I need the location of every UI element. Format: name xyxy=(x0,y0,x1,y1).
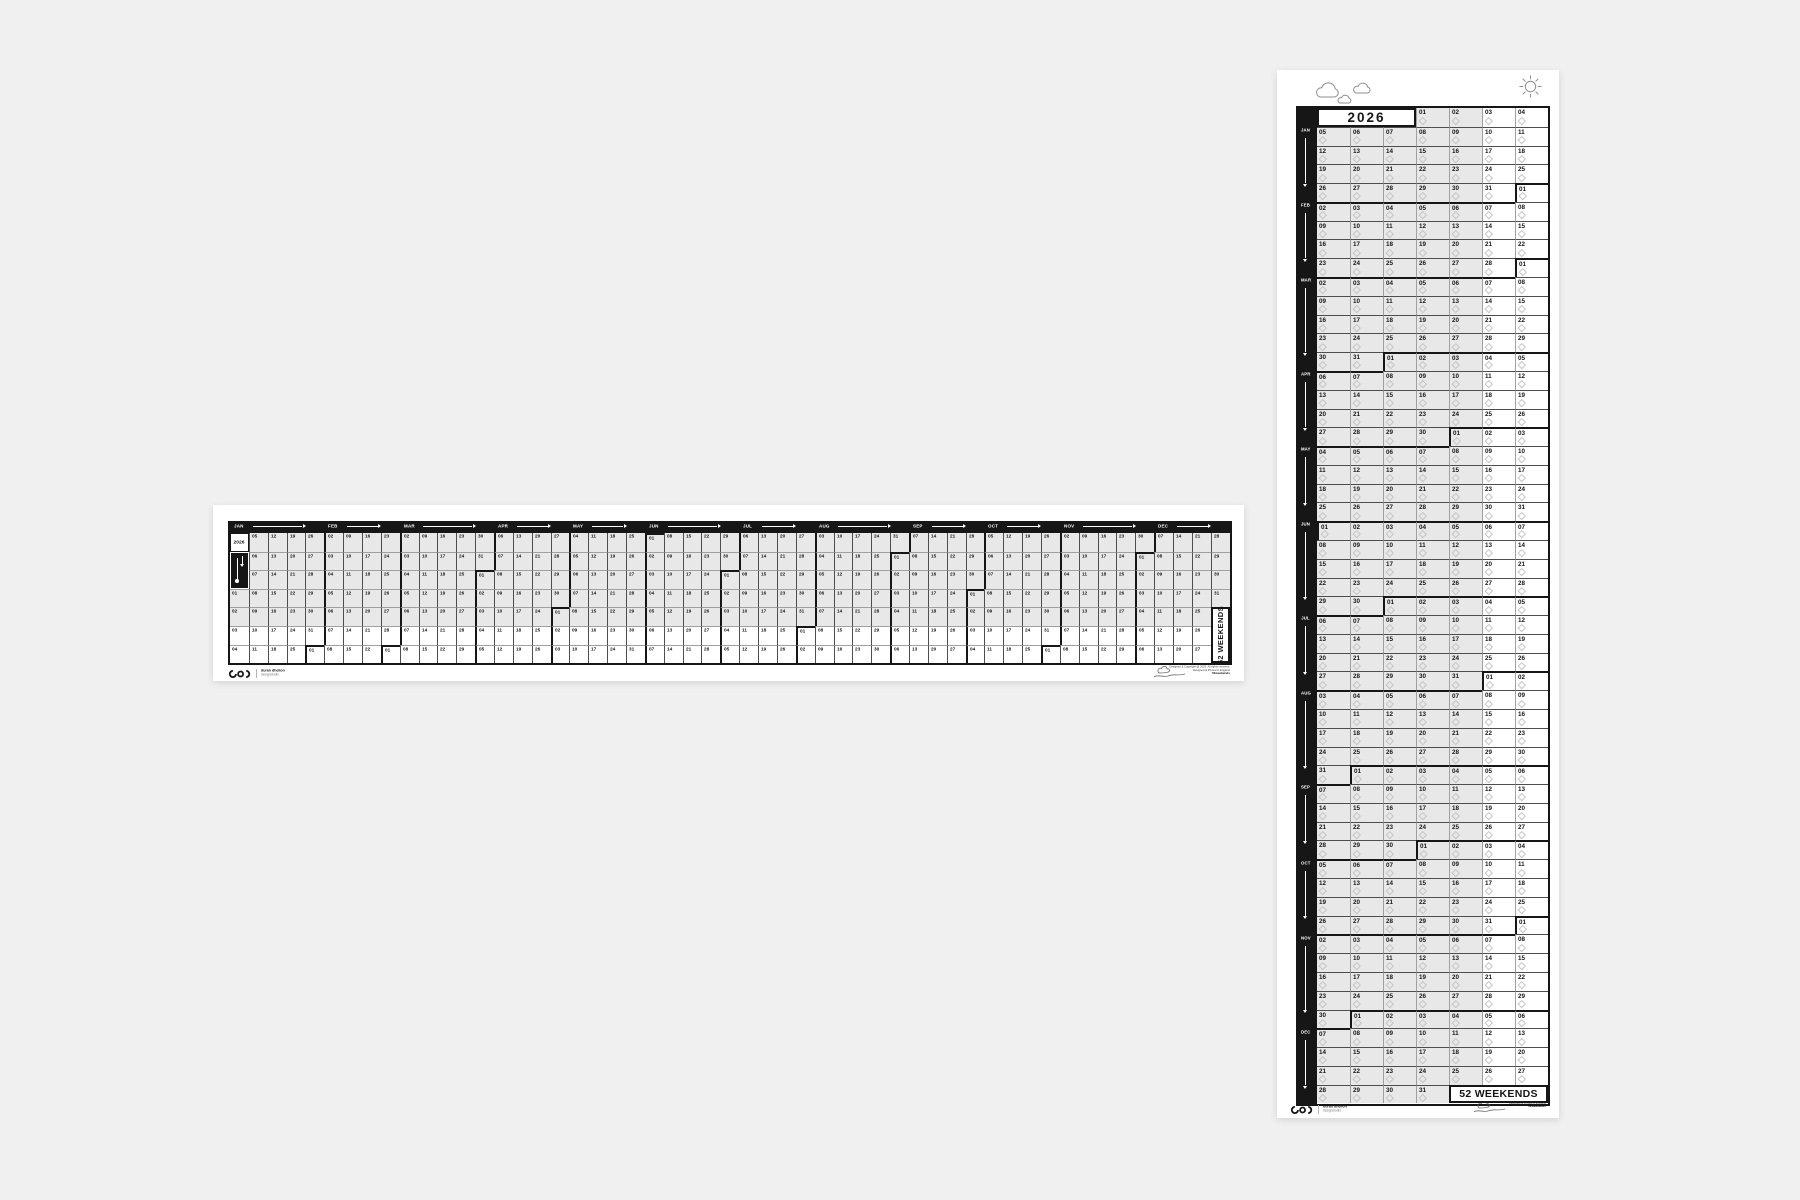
day-cell: 28 xyxy=(966,533,985,552)
date-number: 03 xyxy=(232,628,237,633)
month-label: NOV xyxy=(1301,936,1310,940)
day-cell: 03 xyxy=(1449,596,1482,615)
diamond-icon xyxy=(1485,568,1493,576)
date-number: 22 xyxy=(1419,899,1426,905)
date-number: 04 xyxy=(1353,693,1360,699)
date-number: 14 xyxy=(1485,298,1492,304)
diamond-icon xyxy=(1386,718,1394,726)
date-number: 16 xyxy=(1518,711,1525,717)
brand-logo-icon xyxy=(1290,1105,1316,1115)
date-number: 07 xyxy=(988,572,993,577)
day-cell: 22 xyxy=(1383,653,1416,672)
date-number: 14 xyxy=(1319,1049,1326,1055)
diamond-icon xyxy=(1321,530,1329,538)
date-number: 05 xyxy=(649,609,654,614)
day-cell: 03 xyxy=(1060,552,1079,571)
day-cell: 17 xyxy=(1003,626,1022,645)
date-number: 30 xyxy=(1386,1087,1393,1093)
date-number: 19 xyxy=(1319,166,1326,172)
diamond-icon xyxy=(1419,549,1427,557)
diamond-icon xyxy=(1485,718,1493,726)
day-cell: 16 xyxy=(513,589,532,608)
day-cell: 08 xyxy=(494,570,513,589)
diamond-icon xyxy=(1386,1019,1394,1027)
date-number: 29 xyxy=(1319,598,1326,604)
date-number: 18 xyxy=(1518,148,1525,154)
date-number: 13 xyxy=(271,554,276,559)
diamond-icon xyxy=(1386,399,1394,407)
date-number: 05 xyxy=(573,554,578,559)
date-number: 18 xyxy=(440,572,445,577)
day-cell: 24 xyxy=(1416,822,1449,841)
date-number: 27 xyxy=(1353,185,1360,191)
date-number: 21 xyxy=(1101,628,1106,633)
day-cell: 23 xyxy=(777,589,796,608)
month-label: AUG xyxy=(1301,691,1310,695)
day-cell: 03 xyxy=(966,626,985,645)
day-cell: 27 xyxy=(1449,333,1482,352)
date-number: 22 xyxy=(535,572,540,577)
diamond-icon xyxy=(1353,455,1361,463)
date-number: 25 xyxy=(874,554,879,559)
date-number: 27 xyxy=(1195,647,1200,652)
tagline-box: 52 WEEKENDS xyxy=(1211,607,1230,663)
diamond-icon xyxy=(1353,906,1361,914)
diamond-icon xyxy=(1353,211,1361,219)
day-cell: 22 xyxy=(362,645,381,664)
day-cell: 15 xyxy=(1482,709,1515,728)
day-cell: 08 xyxy=(1383,615,1416,634)
day-cell: 10 xyxy=(1383,540,1416,559)
day-cell: 04 xyxy=(324,570,343,589)
diamond-icon xyxy=(1518,699,1526,707)
day-cell: 27 xyxy=(626,570,645,589)
date-number: 24 xyxy=(1386,580,1393,586)
day-cell: 08 xyxy=(1449,446,1482,465)
day-cell: 07 xyxy=(494,552,513,571)
day-cell: 18 xyxy=(1350,728,1383,747)
day-cell: 13 xyxy=(1449,296,1482,315)
date-number: 08 xyxy=(572,609,577,614)
date-number: 28 xyxy=(1119,628,1124,633)
diamond-icon xyxy=(1485,1056,1493,1064)
day-cell: 01 xyxy=(1317,521,1350,540)
right-arrow-icon xyxy=(668,526,717,527)
diamond-icon xyxy=(1319,906,1327,914)
date-number: 03 xyxy=(894,591,899,596)
date-number: 15 xyxy=(591,609,596,614)
day-cell: 06 xyxy=(1317,615,1350,634)
day-cell: 12 xyxy=(1449,540,1482,559)
day-cell: 09 xyxy=(1383,784,1416,803)
day-cell: 01 xyxy=(966,589,985,608)
date-number: 27 xyxy=(308,554,313,559)
date-number: 28 xyxy=(1452,749,1459,755)
date-number: 21 xyxy=(535,554,540,559)
date-number: 24 xyxy=(1319,749,1326,755)
date-number: 29 xyxy=(1214,554,1219,559)
day-cell: 05 xyxy=(569,552,588,571)
day-cell: 15 xyxy=(834,626,853,645)
down-arrow-icon xyxy=(1305,213,1306,258)
date-number: 23 xyxy=(610,628,615,633)
day-cell: 06 xyxy=(1383,446,1416,465)
day-cell: 24 xyxy=(1350,258,1383,277)
day-cell: 01 xyxy=(1515,258,1548,277)
day-cell: 15 xyxy=(1350,1047,1383,1066)
day-cell: 28 xyxy=(381,626,400,645)
day-cell: 22 xyxy=(947,552,966,571)
diamond-icon xyxy=(1485,455,1493,463)
diamond-icon xyxy=(1319,343,1327,351)
date-number: 17 xyxy=(761,609,766,614)
date-number: 13 xyxy=(591,572,596,577)
diamond-icon xyxy=(1485,605,1493,613)
date-number: 25 xyxy=(1518,166,1525,172)
day-cell: 09 xyxy=(249,607,268,626)
day-cell: 27 xyxy=(871,589,890,608)
date-number: 28 xyxy=(384,628,389,633)
date-number: 15 xyxy=(1485,711,1492,717)
date-number: 04 xyxy=(232,647,237,652)
day-cell: 17 xyxy=(1482,878,1515,897)
day-cell: 14 xyxy=(419,626,438,645)
date-number: 16 xyxy=(1176,572,1181,577)
day-cell: 31 xyxy=(1482,916,1515,935)
diamond-icon xyxy=(1386,474,1394,482)
date-number: 30 xyxy=(799,591,804,596)
diamond-icon xyxy=(1419,267,1427,275)
day-cell: 16 xyxy=(1515,709,1548,728)
date-number: 15 xyxy=(1386,636,1393,642)
date-number: 07 xyxy=(743,554,748,559)
day-cell: 17 xyxy=(1449,634,1482,653)
date-number: 08 xyxy=(912,554,917,559)
date-number: 28 xyxy=(1319,1087,1326,1093)
diamond-icon xyxy=(1419,380,1427,388)
day-cell: 17 xyxy=(362,552,381,571)
diamond-icon xyxy=(1518,868,1526,876)
date-number: 26 xyxy=(874,572,879,577)
date-number: 19 xyxy=(1319,899,1326,905)
day-cell: 13 xyxy=(1416,709,1449,728)
day-cell: 21 xyxy=(1022,570,1041,589)
day-cell: 29 xyxy=(1416,183,1449,202)
date-number: 18 xyxy=(931,609,936,614)
day-cell: 22 xyxy=(1350,822,1383,841)
day-cell: 05 xyxy=(1416,277,1449,296)
day-cell: 13 xyxy=(664,626,683,645)
diamond-icon xyxy=(1386,587,1394,595)
day-cell: 31 xyxy=(890,533,909,552)
day-cell: 09 xyxy=(1317,296,1350,315)
day-cell: 25 xyxy=(1383,333,1416,352)
diamond-icon xyxy=(1419,493,1427,501)
day-cell: 18 xyxy=(683,589,702,608)
day-cell: 24 xyxy=(1383,578,1416,597)
date-number: 14 xyxy=(1353,392,1360,398)
day-cell: 03 xyxy=(1383,521,1416,540)
day-cell: 03 xyxy=(1317,690,1350,709)
date-number: 11 xyxy=(1386,298,1393,304)
diamond-icon xyxy=(1319,361,1327,369)
date-number: 08 xyxy=(818,628,823,633)
diamond-icon xyxy=(1485,812,1493,820)
date-number: 03 xyxy=(649,572,654,577)
month-label: JAN xyxy=(1301,128,1310,132)
day-cell: 27 xyxy=(1317,671,1350,690)
day-cell: 18 xyxy=(852,552,871,571)
day-cell: 01 xyxy=(1416,840,1449,859)
date-number: 12 xyxy=(837,572,842,577)
diamond-icon xyxy=(1485,1075,1493,1083)
date-number: 01 xyxy=(232,591,237,596)
day-cell: 28 xyxy=(1317,1085,1350,1104)
day-cell: 10 xyxy=(1350,221,1383,240)
day-cell: 09 xyxy=(739,589,758,608)
day-cell: 14 xyxy=(1350,634,1383,653)
diamond-icon xyxy=(1452,868,1460,876)
date-number: 20 xyxy=(1176,647,1181,652)
date-number: 06 xyxy=(1139,647,1144,652)
month-label: MAR xyxy=(1301,278,1310,282)
day-cell: 10 xyxy=(1449,371,1482,390)
diamond-icon xyxy=(1319,643,1327,651)
date-number: 25 xyxy=(1419,580,1426,586)
day-cell: 30 xyxy=(1515,747,1548,766)
diamond-icon xyxy=(1319,868,1327,876)
down-arrow-icon xyxy=(1305,1040,1306,1085)
date-number: 09 xyxy=(1386,786,1393,792)
diamond-icon xyxy=(1485,324,1493,332)
diamond-icon xyxy=(1518,418,1526,426)
year-label: 2026 xyxy=(234,540,245,546)
diamond-icon xyxy=(1485,286,1493,294)
day-cell: 10 xyxy=(1449,615,1482,634)
diamond-icon xyxy=(1386,267,1394,275)
diamond-icon xyxy=(1419,981,1427,989)
day-cell: 12 xyxy=(739,645,758,664)
diamond-icon xyxy=(1485,361,1493,369)
date-number: 21 xyxy=(440,628,445,633)
date-number: 23 xyxy=(1319,335,1326,341)
day-cell: 24 xyxy=(871,533,890,552)
diamond-icon xyxy=(1419,624,1427,632)
day-cell: 08 xyxy=(1515,202,1548,221)
date-number: 16 xyxy=(1319,241,1326,247)
day-cell: 26 xyxy=(1041,533,1060,552)
day-cell: 30 xyxy=(1350,596,1383,615)
date-number: 13 xyxy=(1518,786,1525,792)
diamond-icon xyxy=(1485,624,1493,632)
day-cell: 08 xyxy=(739,570,758,589)
date-number: 10 xyxy=(1082,554,1087,559)
date-number: 03 xyxy=(1485,109,1492,115)
date-number: 12 xyxy=(742,647,747,652)
diamond-icon xyxy=(1452,568,1460,576)
diamond-icon xyxy=(1353,756,1361,764)
day-cell: 26 xyxy=(1416,991,1449,1010)
day-cell: 17 xyxy=(1449,390,1482,409)
day-cell: 08 xyxy=(984,589,1003,608)
date-number: 11 xyxy=(667,591,672,596)
date-number: 27 xyxy=(1518,824,1525,830)
diamond-icon xyxy=(1518,305,1526,313)
diamond-icon xyxy=(1319,155,1327,163)
date-number: 26 xyxy=(1452,580,1459,586)
day-cell: 16 xyxy=(1482,465,1515,484)
diamond-icon xyxy=(1419,699,1427,707)
day-cell: 20 xyxy=(777,533,796,552)
day-cell: 26 xyxy=(1515,409,1548,428)
diamond-icon xyxy=(1485,925,1493,933)
day-cell: 29 xyxy=(1350,840,1383,859)
diamond-icon xyxy=(1420,850,1428,858)
day-cell: 29 xyxy=(305,589,324,608)
diamond-icon xyxy=(1452,249,1460,257)
day-cell: 09 xyxy=(1449,859,1482,878)
day-cell: 24 xyxy=(947,589,966,608)
diamond-icon xyxy=(1354,774,1362,782)
diamond-icon xyxy=(1485,887,1493,895)
date-number: 12 xyxy=(1452,542,1459,548)
day-cell: 23 xyxy=(381,533,400,552)
date-number: 08 xyxy=(497,572,502,577)
day-cell: 01 xyxy=(796,626,815,645)
date-number: 15 xyxy=(1518,223,1525,229)
diamond-icon xyxy=(1452,305,1460,313)
diamond-icon xyxy=(1353,249,1361,257)
diamond-icon xyxy=(1319,399,1327,407)
date-number: 23 xyxy=(1319,993,1326,999)
diamond-icon xyxy=(1386,418,1394,426)
diamond-icon xyxy=(1452,361,1460,369)
date-number: 05 xyxy=(1139,628,1144,633)
diamond-icon xyxy=(1485,493,1493,501)
day-cell: 09 xyxy=(1515,690,1548,709)
day-cell: 19 xyxy=(852,570,871,589)
date-number: 09 xyxy=(1419,373,1426,379)
diamond-icon xyxy=(1387,605,1395,613)
date-number: 08 xyxy=(1419,861,1426,867)
day-cell: 24 xyxy=(1022,626,1041,645)
date-number: 11 xyxy=(742,628,747,633)
day-cell: 03 xyxy=(1515,427,1548,446)
diamond-icon xyxy=(1452,662,1460,670)
diamond-icon xyxy=(1386,455,1394,463)
date-number: 08 xyxy=(1386,617,1393,623)
week-direction-box xyxy=(231,553,248,588)
day-cell: 06 xyxy=(1515,1010,1548,1029)
date-number: 11 xyxy=(1485,617,1492,623)
day-cell: 07 xyxy=(1317,784,1350,803)
diamond-icon xyxy=(1485,211,1493,219)
day-cell: 22 xyxy=(1449,484,1482,503)
day-cell: 29 xyxy=(456,645,475,664)
day-cell: 07 xyxy=(739,552,758,571)
date-number: 16 xyxy=(1319,317,1326,323)
diamond-icon xyxy=(1485,944,1493,952)
diamond-icon xyxy=(1452,1075,1460,1083)
date-number: 18 xyxy=(271,647,276,652)
day-cell: 04 xyxy=(1515,108,1548,127)
day-cell: 07 xyxy=(1416,446,1449,465)
day-cell: 27 xyxy=(305,552,324,571)
date-number: 09 xyxy=(818,647,823,652)
diamond-icon xyxy=(1386,643,1394,651)
date-number: 29 xyxy=(1353,842,1360,848)
day-cell: 14 xyxy=(834,607,853,626)
day-cell: 27 xyxy=(1317,427,1350,446)
day-cell: 22 xyxy=(1515,239,1548,258)
day-cell: 23 xyxy=(456,533,475,552)
day-cell: 22 xyxy=(1482,728,1515,747)
day-cell: 18 xyxy=(758,626,777,645)
day-cell: 15 xyxy=(1515,296,1548,315)
date-number: 22 xyxy=(1025,591,1030,596)
diamond-icon xyxy=(1353,173,1361,181)
date-number: 07 xyxy=(252,572,257,577)
date-number: 05 xyxy=(1319,862,1326,868)
day-cell: 29 xyxy=(1383,671,1416,690)
day-cell: 01 xyxy=(305,645,324,664)
diamond-icon xyxy=(1419,512,1427,520)
date-number: 09 xyxy=(252,609,257,614)
diamond-icon xyxy=(1518,587,1526,595)
diamond-icon xyxy=(1518,643,1526,651)
date-number: 26 xyxy=(1518,655,1525,661)
month-label: MAY xyxy=(1301,447,1310,451)
day-cell: 16 xyxy=(1173,570,1192,589)
diamond-icon xyxy=(1319,192,1327,200)
day-cell: 07 xyxy=(569,589,588,608)
diamond-icon xyxy=(1419,117,1427,125)
day-cell: 02 xyxy=(1060,533,1079,552)
date-number: 20 xyxy=(1485,561,1492,567)
date-number: 24 xyxy=(1195,591,1200,596)
day-cell: 02 xyxy=(1350,521,1383,540)
day-cell: 25 xyxy=(777,626,796,645)
date-number: 10 xyxy=(1419,1030,1426,1036)
date-number: 24 xyxy=(1452,411,1459,417)
day-cell: 16 xyxy=(1383,1047,1416,1066)
day-cell: 27 xyxy=(796,533,815,552)
date-number: 12 xyxy=(422,591,427,596)
date-number: 03 xyxy=(328,554,333,559)
date-number: 08 xyxy=(1518,936,1525,942)
date-number: 14 xyxy=(346,628,351,633)
date-number: 28 xyxy=(1485,335,1492,341)
date-number: 15 xyxy=(1518,955,1525,961)
date-number: 11 xyxy=(1452,1030,1459,1036)
diamond-icon xyxy=(1519,925,1527,933)
diamond-icon xyxy=(1319,1094,1327,1102)
date-number: 30 xyxy=(1319,354,1326,360)
day-cell: 06 xyxy=(249,552,268,571)
date-number: 20 xyxy=(1518,805,1525,811)
diamond-icon xyxy=(1419,192,1427,200)
day-cell: 12 xyxy=(494,645,513,664)
day-cell: 05 xyxy=(1515,352,1548,371)
day-cell: 25 xyxy=(381,570,400,589)
date-number: 18 xyxy=(1386,317,1393,323)
day-cell: 18 xyxy=(1383,972,1416,991)
diamond-icon xyxy=(1518,793,1526,801)
day-cell: 23 xyxy=(947,570,966,589)
date-number: 26 xyxy=(950,628,955,633)
day-cell: 18 xyxy=(1449,1047,1482,1066)
diamond-icon xyxy=(1386,324,1394,332)
